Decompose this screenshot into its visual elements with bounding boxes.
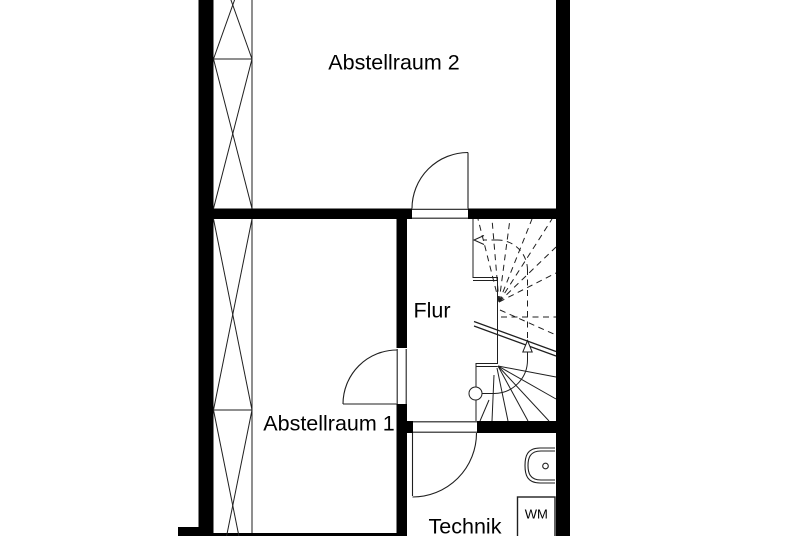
hatch-cross-line — [214, 0, 253, 59]
door-abstellraum-2 — [412, 153, 468, 219]
hatch-cross-line — [214, 410, 253, 536]
wall-flur-west-upper — [397, 219, 408, 348]
stair-walkline — [469, 236, 532, 401]
door-abstellraum-1 — [343, 349, 406, 404]
wall-technik-north-right — [477, 421, 556, 433]
wall-abstellraum2-south-left — [214, 209, 413, 220]
floor-plan-canvas: WM Abstellraum 2 Flur Abstellraum 1 Tech… — [0, 0, 800, 536]
stair-tread — [499, 219, 532, 302]
insulation-hatch-strip — [214, 0, 253, 536]
hatch-cross-line — [214, 410, 253, 536]
room-label-abstellraum-1: Abstellraum 1 — [263, 412, 394, 436]
wall-technik-north-stub — [407, 421, 413, 433]
stair-tread — [499, 273, 556, 302]
stair-tread — [497, 368, 508, 421]
basin-outer-rim — [525, 448, 555, 483]
wall-exterior-right — [556, 0, 570, 536]
washing-machine: WM — [518, 497, 556, 536]
walkline-start-circle — [469, 387, 482, 400]
stair-cut-line — [474, 322, 556, 352]
door-swing-arc — [412, 153, 468, 209]
basin-inner-rim — [528, 451, 555, 480]
basin-drain-icon — [543, 463, 549, 469]
walls — [178, 0, 570, 536]
wall-stub-bottom-left — [178, 527, 199, 536]
door-swing-arc — [413, 433, 477, 497]
room-label-abstellraum-2: Abstellraum 2 — [328, 51, 459, 75]
room-label-technik: Technik — [429, 515, 502, 536]
stair-cut-line — [474, 326, 556, 356]
washing-machine-label: WM — [525, 507, 548, 522]
walkline-curve-upper — [498, 240, 528, 270]
floor-plan-drawing: WM Abstellraum 2 Flur Abstellraum 1 Tech… — [0, 0, 800, 536]
wall-abstellraum2-south-right — [468, 209, 556, 220]
hatch-cross-line — [214, 0, 253, 59]
staircase — [469, 219, 556, 421]
wall-flur-west-lower — [397, 404, 408, 536]
room-labels: Abstellraum 2 Flur Abstellraum 1 Technik — [263, 51, 501, 536]
stair-tread — [499, 219, 510, 302]
room-label-flur: Flur — [413, 299, 450, 323]
stair-tread — [492, 375, 494, 421]
wall-exterior-left — [199, 0, 214, 536]
stair-tread — [478, 219, 499, 302]
technik-fixtures: WM — [518, 448, 556, 536]
door-technik — [413, 422, 478, 497]
door-swing-arc — [343, 350, 397, 404]
stair-tread — [499, 219, 552, 302]
wash-basin — [525, 448, 555, 483]
stair-tread — [480, 400, 489, 421]
